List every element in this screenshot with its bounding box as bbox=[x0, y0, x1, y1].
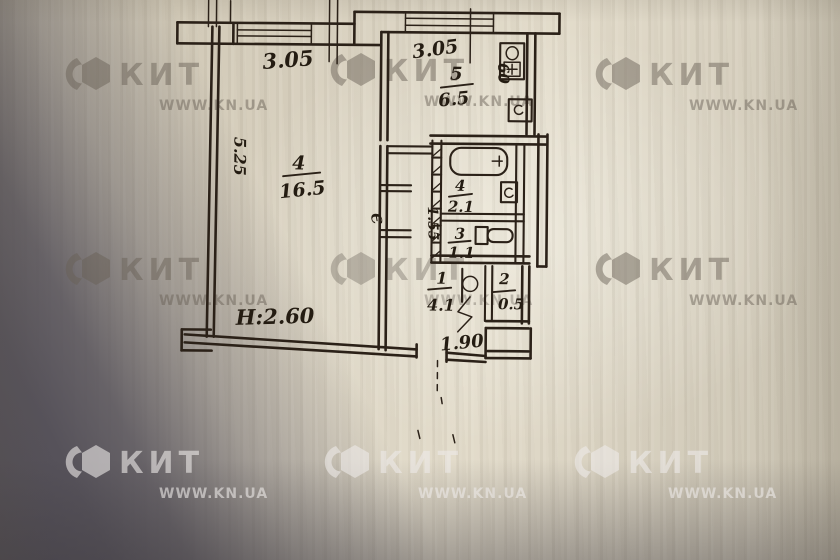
ceiling-height-note: Н:2.60 bbox=[234, 303, 315, 330]
watermark bbox=[66, 252, 268, 309]
label-hall-area: 4.1 bbox=[427, 296, 455, 315]
dim-entry-width: 1.90 bbox=[439, 330, 485, 355]
watermark bbox=[575, 445, 777, 502]
label-hall-number: 1 bbox=[436, 269, 447, 288]
dim-kitchen-unit: 60 bbox=[494, 63, 513, 85]
label-kitchen-area: 6.5 bbox=[437, 88, 470, 112]
dim-side-depth: 5.25 bbox=[230, 137, 249, 176]
entry-axis-dots bbox=[418, 397, 455, 442]
watermark bbox=[66, 445, 268, 502]
bathtub-tap-icon bbox=[492, 156, 502, 166]
sink-basin-icon bbox=[506, 47, 518, 60]
toilet-tank-icon bbox=[476, 227, 488, 244]
label-living-number: 4 bbox=[292, 152, 305, 174]
window-symbol bbox=[237, 30, 311, 31]
watermark bbox=[325, 445, 527, 502]
bath-sink-mark-icon bbox=[505, 188, 513, 197]
toilet-bowl-icon bbox=[488, 229, 513, 242]
watermark bbox=[596, 57, 798, 114]
dim-living-width: 3.05 bbox=[261, 45, 314, 74]
label-toilet-area: 1.1 bbox=[448, 244, 474, 262]
label-bath-number: 4 bbox=[455, 177, 466, 195]
floor-plan-drawing: КИТ WWW.KN.UA bbox=[0, 0, 840, 560]
screenshot-root: { "watermark": { "brand": "КИТ", "site":… bbox=[0, 0, 840, 560]
bath-sink-icon bbox=[501, 182, 517, 202]
corridor-mark: Є bbox=[367, 212, 385, 226]
label-living-area: 16.5 bbox=[278, 177, 326, 203]
label-closet-area: 0.5 bbox=[498, 295, 524, 313]
label-closet-number: 2 bbox=[498, 270, 510, 288]
window-symbol bbox=[405, 25, 493, 26]
watermark bbox=[596, 252, 798, 309]
window-symbol bbox=[237, 36, 311, 37]
label-kitchen-number: 5 bbox=[450, 64, 463, 85]
window-symbol bbox=[405, 18, 493, 19]
label-bath-area: 2.1 bbox=[447, 198, 474, 216]
watermark bbox=[66, 57, 268, 114]
label-toilet-number: 3 bbox=[455, 225, 466, 243]
dim-corridor-width: 1.55 bbox=[424, 206, 441, 241]
